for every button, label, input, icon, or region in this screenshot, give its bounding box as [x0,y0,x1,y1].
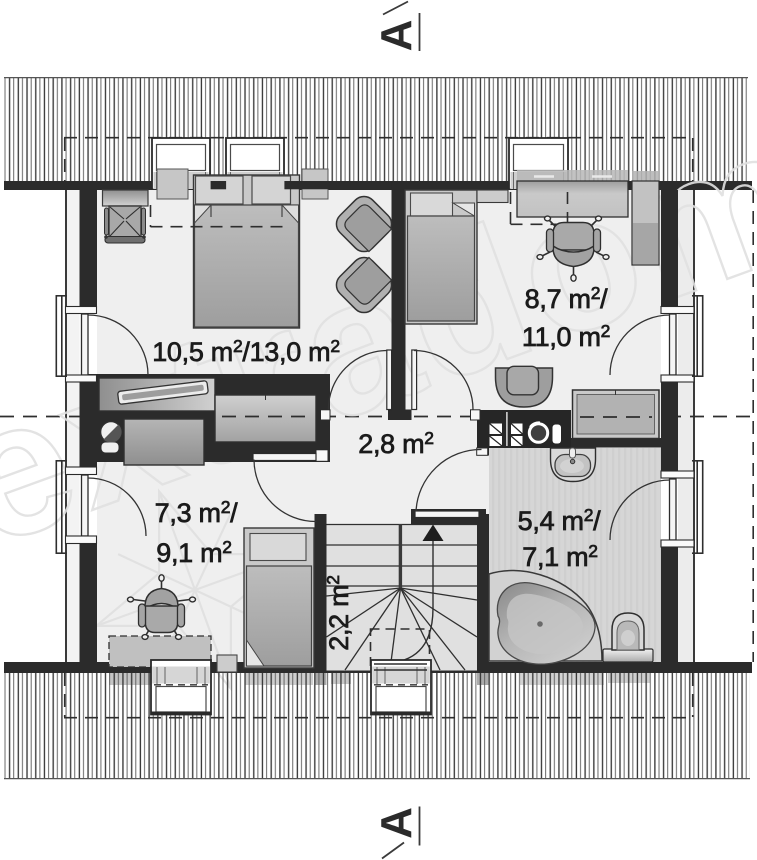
svg-text:7,1 m2: 7,1 m2 [522,541,597,572]
svg-text:9,1 m2: 9,1 m2 [156,537,231,568]
svg-text:11,0 m2: 11,0 m2 [522,321,610,352]
svg-text:2,2 m2: 2,2 m2 [323,575,354,650]
svg-text:A: A [372,20,421,52]
svg-text:10,5 m2/13,0 m2: 10,5 m2/13,0 m2 [152,336,340,367]
svg-text:A: A [372,807,421,839]
svg-text:2,8 m2: 2,8 m2 [358,428,433,459]
